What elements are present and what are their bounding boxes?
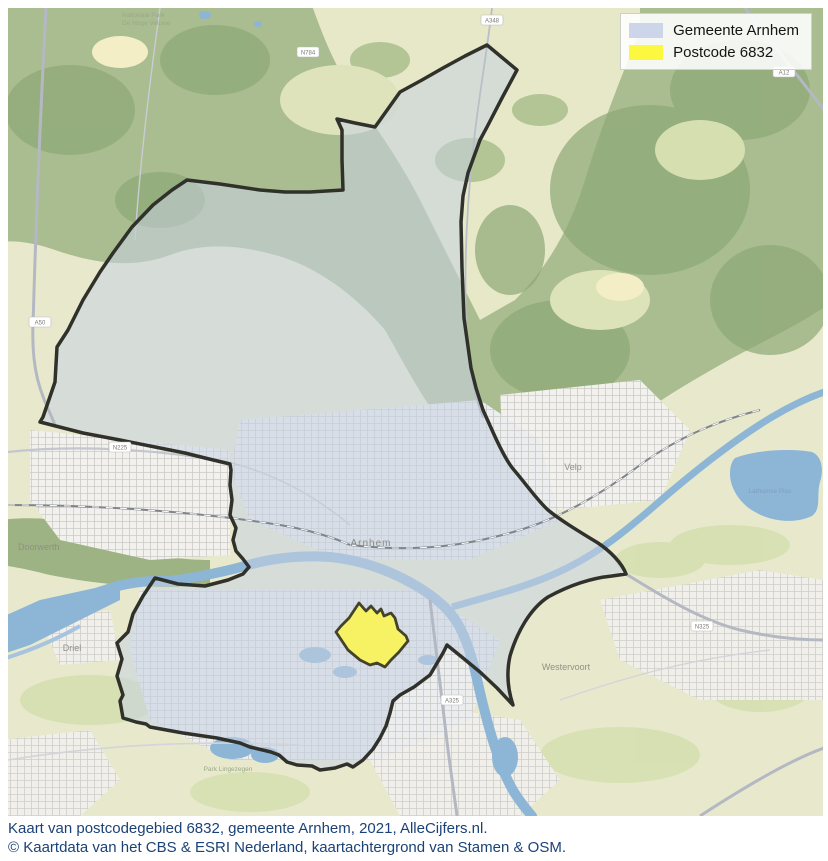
svg-text:N784: N784 — [301, 51, 316, 57]
legend-label-municipality: Gemeente Arnhem — [673, 22, 799, 39]
road-pill-n225: N225 — [109, 442, 131, 452]
legend-label-postcode: Postcode 6832 — [673, 44, 773, 61]
lake — [492, 737, 518, 777]
area-label-park-line2: De Hoge Veluwe — [122, 20, 171, 27]
town-label-driel: Driel — [63, 643, 82, 653]
map-canvas: Arnhem Velp Westervoort Driel Doorwerth … — [0, 0, 828, 861]
caption-attribution: © Kaartdata van het CBS & ESRI Nederland… — [8, 838, 566, 857]
svg-text:N325: N325 — [695, 625, 710, 631]
svg-text:A348: A348 — [485, 19, 500, 25]
pond — [254, 21, 262, 27]
area-label-park-line1: Nationaal Park — [122, 12, 165, 19]
legend: Gemeente Arnhem Postcode 6832 — [620, 13, 812, 70]
road-pill-n784: N784 — [297, 47, 319, 57]
road-pill-a348: A348 — [481, 15, 503, 25]
town-label-arnhem: Arnhem — [350, 538, 391, 549]
town-label-velp: Velp — [564, 462, 582, 472]
legend-swatch-municipality — [629, 23, 663, 38]
caption: Kaart van postcodegebied 6832, gemeente … — [8, 819, 566, 857]
legend-item-municipality: Gemeente Arnhem — [629, 19, 799, 41]
svg-text:N225: N225 — [113, 446, 128, 452]
town-label-doorwerth: Doorwerth — [18, 542, 60, 552]
road-pill-a325: A325 — [441, 695, 463, 705]
svg-text:A325: A325 — [445, 699, 460, 705]
map-page: Arnhem Velp Westervoort Driel Doorwerth … — [0, 0, 828, 861]
legend-swatch-postcode — [629, 45, 663, 60]
road-pill-a50: A50 — [29, 317, 51, 327]
pond — [199, 11, 211, 19]
svg-text:A50: A50 — [35, 321, 46, 327]
town-label-westervoort: Westervoort — [542, 662, 591, 672]
area-label-lingezegen: Park Lingezegen — [204, 766, 253, 773]
caption-title: Kaart van postcodegebied 6832, gemeente … — [8, 819, 566, 838]
svg-text:A12: A12 — [779, 71, 790, 77]
forest-patch — [512, 94, 568, 126]
road-pill-n325: N325 — [691, 621, 713, 631]
water-label-lathumse-plas: Lathumse Plas — [749, 488, 793, 495]
legend-item-postcode: Postcode 6832 — [629, 41, 799, 63]
